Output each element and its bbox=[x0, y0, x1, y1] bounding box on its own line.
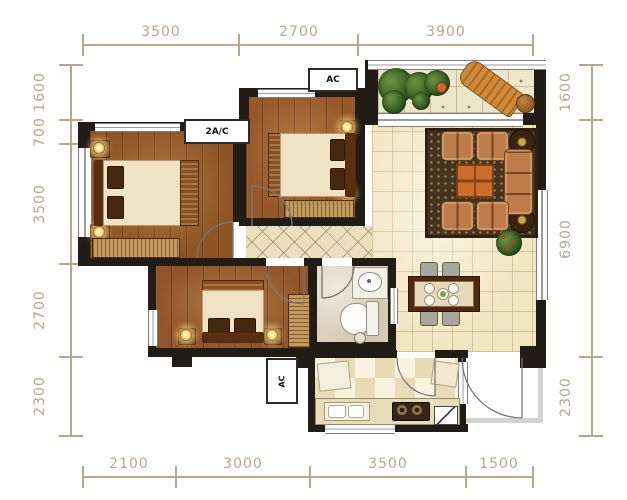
window bbox=[95, 123, 180, 132]
dim-label-left-3: 2700 bbox=[32, 280, 48, 340]
lamp bbox=[180, 329, 192, 341]
wall bbox=[233, 131, 246, 222]
ac-unit-text: 2A/C bbox=[205, 127, 228, 137]
dim-tick bbox=[357, 34, 359, 56]
dim-tick bbox=[579, 64, 603, 66]
lamp bbox=[93, 142, 105, 154]
dim-line-left bbox=[70, 65, 72, 437]
dim-label-right-0: 1600 bbox=[558, 62, 574, 122]
wardrobe bbox=[288, 294, 310, 348]
hallway bbox=[246, 226, 372, 258]
lamp bbox=[266, 329, 278, 341]
water-heater bbox=[434, 406, 458, 425]
pillow bbox=[330, 168, 345, 190]
balcony-plant bbox=[382, 90, 406, 114]
wall bbox=[239, 218, 365, 226]
pillow bbox=[107, 196, 124, 219]
dim-line-right bbox=[591, 65, 593, 437]
armchair bbox=[441, 201, 474, 231]
dim-label-top-1: 2700 bbox=[269, 24, 329, 40]
wall bbox=[308, 342, 396, 350]
plate bbox=[424, 283, 435, 294]
dim-label-bottom-2: 3500 bbox=[358, 456, 418, 472]
plate bbox=[448, 283, 459, 294]
sink-bowl bbox=[328, 405, 346, 418]
window bbox=[325, 424, 395, 434]
dim-label-top-2: 3900 bbox=[416, 24, 476, 40]
dim-tick bbox=[579, 356, 603, 358]
window bbox=[390, 288, 398, 324]
bed-foot bbox=[180, 160, 199, 226]
coffee-table bbox=[456, 164, 494, 198]
wardrobe bbox=[284, 200, 354, 218]
pillow bbox=[208, 318, 230, 333]
wall bbox=[355, 88, 365, 225]
ac-unit-label-small-bedroom: AC bbox=[266, 358, 298, 404]
dim-line-top bbox=[83, 44, 533, 46]
burner bbox=[397, 405, 407, 415]
dim-tick bbox=[309, 466, 311, 488]
balcony-table bbox=[516, 94, 535, 113]
ac-unit-text: AC bbox=[326, 75, 340, 85]
potted-plant bbox=[496, 230, 522, 256]
flower bbox=[505, 246, 509, 250]
armchair bbox=[441, 131, 474, 161]
burner bbox=[412, 405, 422, 415]
plate bbox=[424, 295, 435, 306]
dim-tick bbox=[82, 34, 84, 56]
lamp bbox=[93, 226, 105, 238]
dining-chair bbox=[442, 310, 460, 326]
fridge bbox=[317, 360, 352, 391]
dim-label-bottom-1: 3000 bbox=[213, 456, 273, 472]
balcony-sliding-door bbox=[378, 113, 523, 127]
dim-label-right-1: 6900 bbox=[558, 209, 574, 269]
dim-label-bottom-0: 2100 bbox=[99, 456, 159, 472]
plate bbox=[448, 295, 459, 306]
dim-tick bbox=[59, 64, 83, 66]
window bbox=[148, 310, 158, 346]
floor-drain bbox=[354, 332, 366, 344]
dim-label-top-0: 3500 bbox=[131, 24, 191, 40]
flower bbox=[511, 240, 515, 244]
dim-tick bbox=[532, 466, 534, 488]
wall bbox=[308, 350, 397, 358]
bed-headboard bbox=[202, 332, 264, 343]
wall bbox=[296, 348, 314, 368]
dim-label-left-1: 700 bbox=[32, 102, 48, 162]
kitchen-cabinet bbox=[430, 360, 459, 387]
dining-chair bbox=[420, 310, 438, 326]
wardrobe bbox=[92, 238, 180, 258]
wall bbox=[520, 346, 546, 368]
floor-plan: 3500 2700 3900 2100 3000 3500 1500 1600 … bbox=[0, 0, 627, 500]
balcony-flower-pot bbox=[436, 82, 447, 93]
wall bbox=[148, 258, 266, 266]
pillow bbox=[330, 139, 345, 161]
balcony-plant bbox=[412, 92, 430, 110]
wall bbox=[308, 258, 322, 266]
armchair bbox=[476, 201, 509, 231]
dim-tick bbox=[82, 466, 84, 488]
dim-tick bbox=[59, 119, 83, 121]
toilet-tank bbox=[366, 301, 379, 336]
window bbox=[258, 89, 315, 98]
serving-dish bbox=[437, 288, 449, 300]
flower bbox=[502, 235, 506, 239]
lamp bbox=[341, 121, 353, 133]
ac-unit-label-master: 2A/C bbox=[184, 119, 250, 144]
dim-tick bbox=[465, 466, 467, 488]
dim-tick bbox=[59, 356, 83, 358]
dim-tick bbox=[59, 435, 83, 437]
pillow bbox=[234, 318, 256, 333]
dim-tick bbox=[579, 119, 603, 121]
dim-tick bbox=[238, 34, 240, 56]
dim-tick bbox=[175, 466, 177, 488]
wall bbox=[172, 355, 192, 367]
ac-unit-text: AC bbox=[278, 375, 287, 387]
sink-bowl bbox=[348, 405, 364, 418]
dim-tick bbox=[532, 34, 534, 56]
dim-label-right-2: 2300 bbox=[558, 367, 574, 427]
sink-drain bbox=[367, 279, 371, 283]
dim-tick bbox=[579, 435, 603, 437]
dim-label-bottom-3: 1500 bbox=[469, 456, 529, 472]
ac-unit-label-top: AC bbox=[308, 68, 358, 92]
pillow bbox=[107, 166, 124, 189]
bed-headboard bbox=[345, 133, 356, 197]
dim-label-left-2: 3500 bbox=[32, 174, 48, 234]
dim-label-left-4: 2300 bbox=[32, 366, 48, 426]
